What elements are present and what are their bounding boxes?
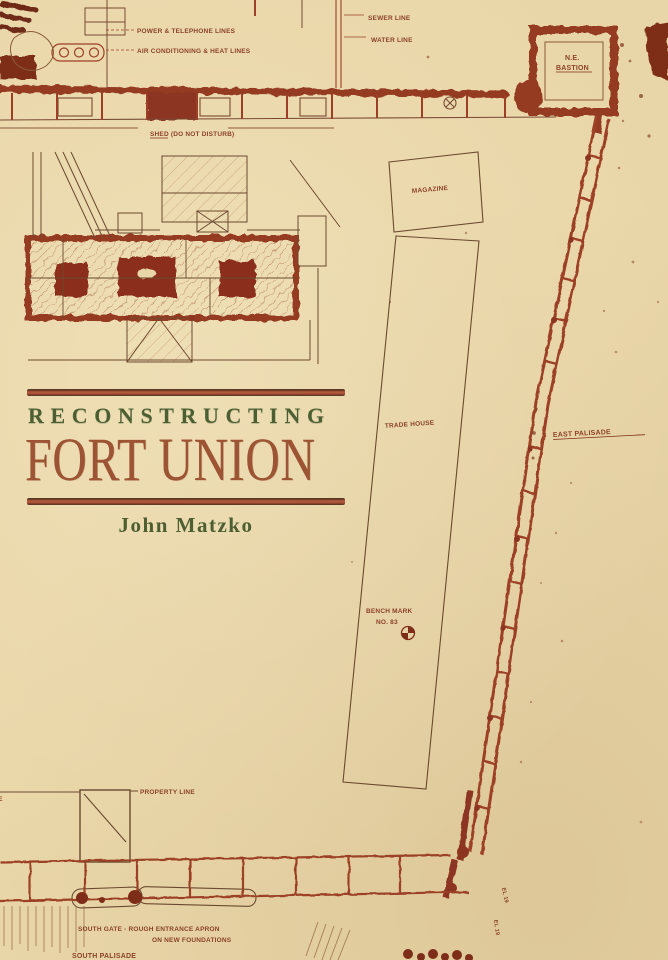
annotation-trade-house: TRADE HOUSE (385, 420, 435, 430)
annotation-property-line: PROPERTY LINE (140, 789, 195, 796)
ground-hatching (4, 906, 350, 960)
chimney-east (219, 261, 255, 297)
title-rule-top (27, 389, 345, 396)
title-line2: FORT UNION (25, 430, 365, 491)
annotation-elevation-1: EL 19 (500, 887, 509, 903)
kitchen-building (162, 156, 247, 222)
porch (127, 318, 192, 362)
annotation-shed-note: SHED (DO NOT DISTURB) (150, 131, 234, 138)
annotation-sewer-line: SEWER LINE (368, 15, 411, 22)
annotation-south-palisade: SOUTH PALISADE (72, 953, 136, 960)
annotation-east-palisade: EAST PALISADE (553, 429, 612, 439)
east-palisade-wall (446, 116, 609, 898)
north-range-solid-cell (147, 92, 197, 120)
annotation-magazine: MAGAZINE (412, 185, 449, 195)
annotation-edge-fragment: LINE (0, 796, 3, 803)
benchmark-symbol (402, 627, 415, 640)
utility-lines (10, 0, 366, 88)
title-line1: RECONSTRUCTING (28, 403, 358, 429)
south-palisade-wall (0, 855, 468, 901)
right-edge-blob (646, 22, 668, 80)
annotation-ne-bastion-2: BASTION (556, 65, 589, 72)
annotation-water-line: WATER LINE (371, 37, 413, 44)
annotation-ne-bastion-1: N.E. (565, 55, 579, 62)
annotation-air-heat: AIR CONDITIONING & HEAT LINES (137, 48, 251, 55)
annotation-south-note-2: ON NEW FOUNDATIONS (152, 937, 232, 944)
upper-left-marks (0, 4, 36, 79)
title-rule-bottom (27, 498, 345, 505)
author-name: John Matzko (27, 513, 345, 538)
book-cover: POWER & TELEPHONE LINES AIR CONDITIONING… (0, 0, 668, 960)
south-wall-blobs (76, 890, 473, 960)
annotation-elevation-2: EL 19 (492, 919, 500, 935)
annotation-bench-mark-2: NO. 83 (376, 619, 398, 626)
annotation-bench-mark-1: BENCH MARK (366, 608, 413, 615)
annotation-south-note-1: SOUTH GATE - ROUGH ENTRANCE APRON (78, 926, 220, 933)
trade-house-building (343, 236, 479, 789)
annotation-power-telephone: POWER & TELEPHONE LINES (137, 28, 236, 35)
gate-structure (80, 790, 130, 862)
chimney-west (55, 263, 88, 296)
